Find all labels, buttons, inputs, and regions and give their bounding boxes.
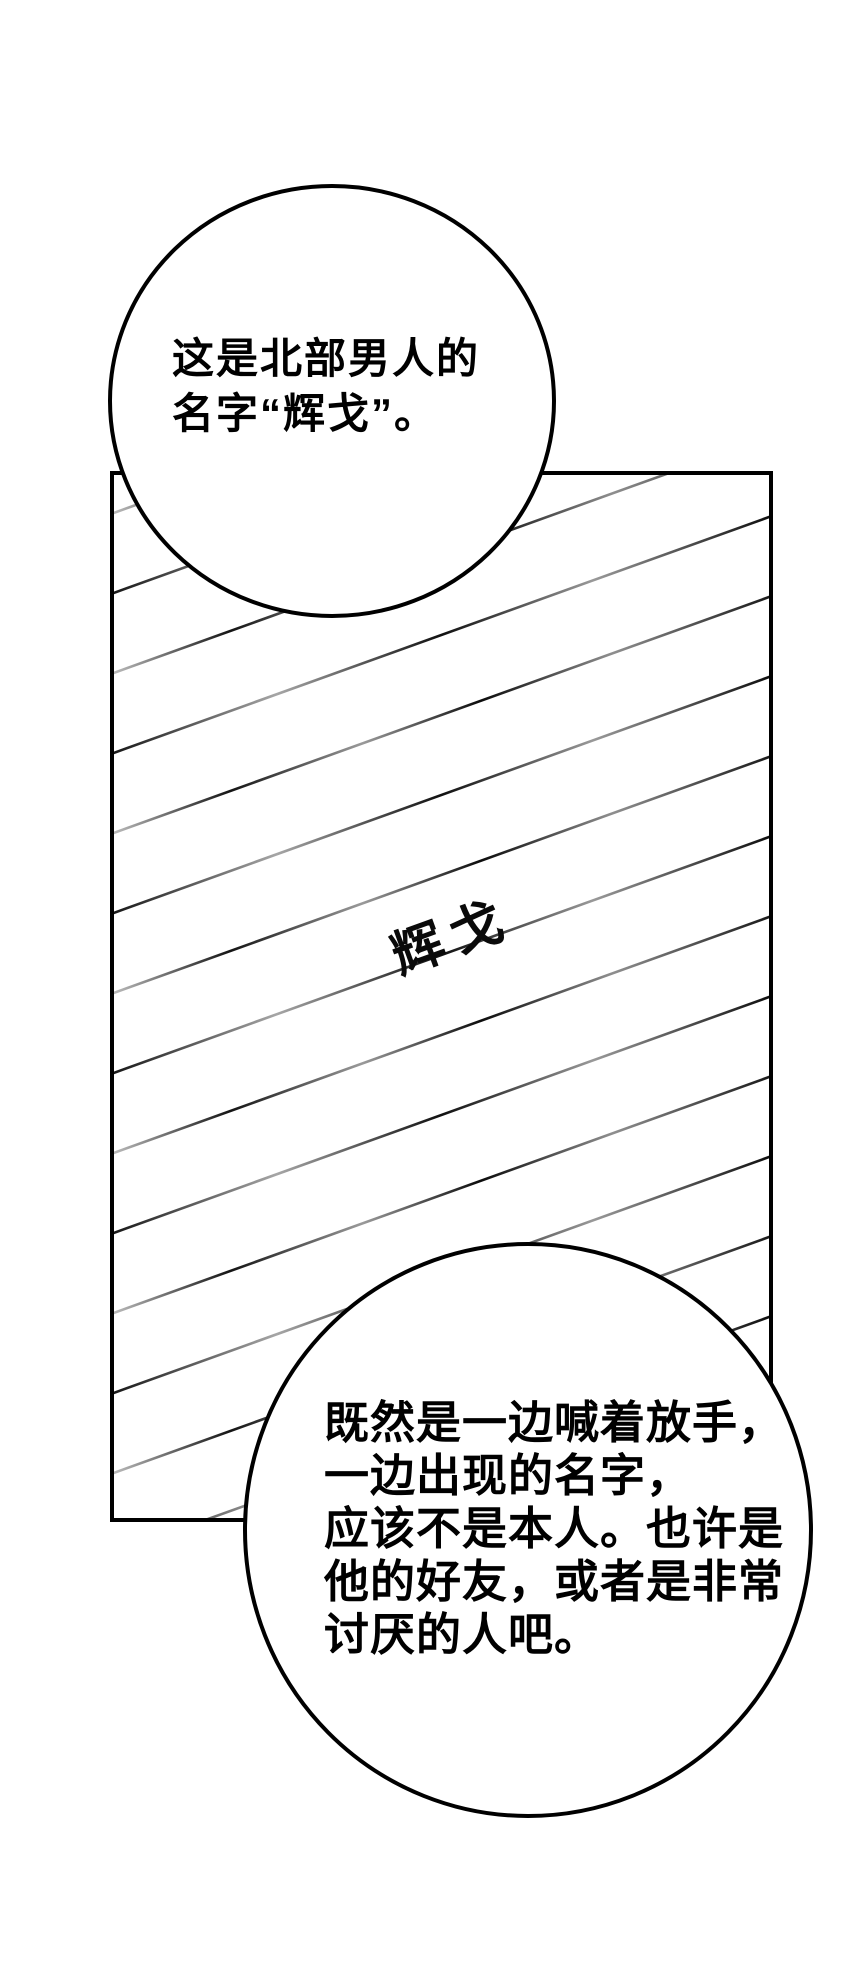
dialogue-line: 这是北部男人的 xyxy=(172,331,480,386)
speech-bubble-bottom-text: 既然是一边喊着放手， 一边出现的名字， 应该不是本人。也许是 他的好友，或者是非… xyxy=(324,1396,784,1661)
dialogue-line: 讨厌的人吧。 xyxy=(324,1608,784,1661)
dialogue-line: 他的好友，或者是非常 xyxy=(324,1555,784,1608)
dialogue-line: 名字“辉戈”。 xyxy=(172,386,480,441)
panel-artwork xyxy=(0,0,850,1984)
dialogue-line: 既然是一边喊着放手， xyxy=(324,1396,784,1449)
dialogue-line: 应该不是本人。也许是 xyxy=(324,1502,784,1555)
speech-bubble-top-text: 这是北部男人的 名字“辉戈”。 xyxy=(172,331,480,441)
dialogue-line: 一边出现的名字， xyxy=(324,1449,784,1502)
comic-page: 辉戈 这是北部男人的 名字“辉戈”。 既然是一边喊着放手， 一边出现的名字， 应… xyxy=(0,0,850,1984)
